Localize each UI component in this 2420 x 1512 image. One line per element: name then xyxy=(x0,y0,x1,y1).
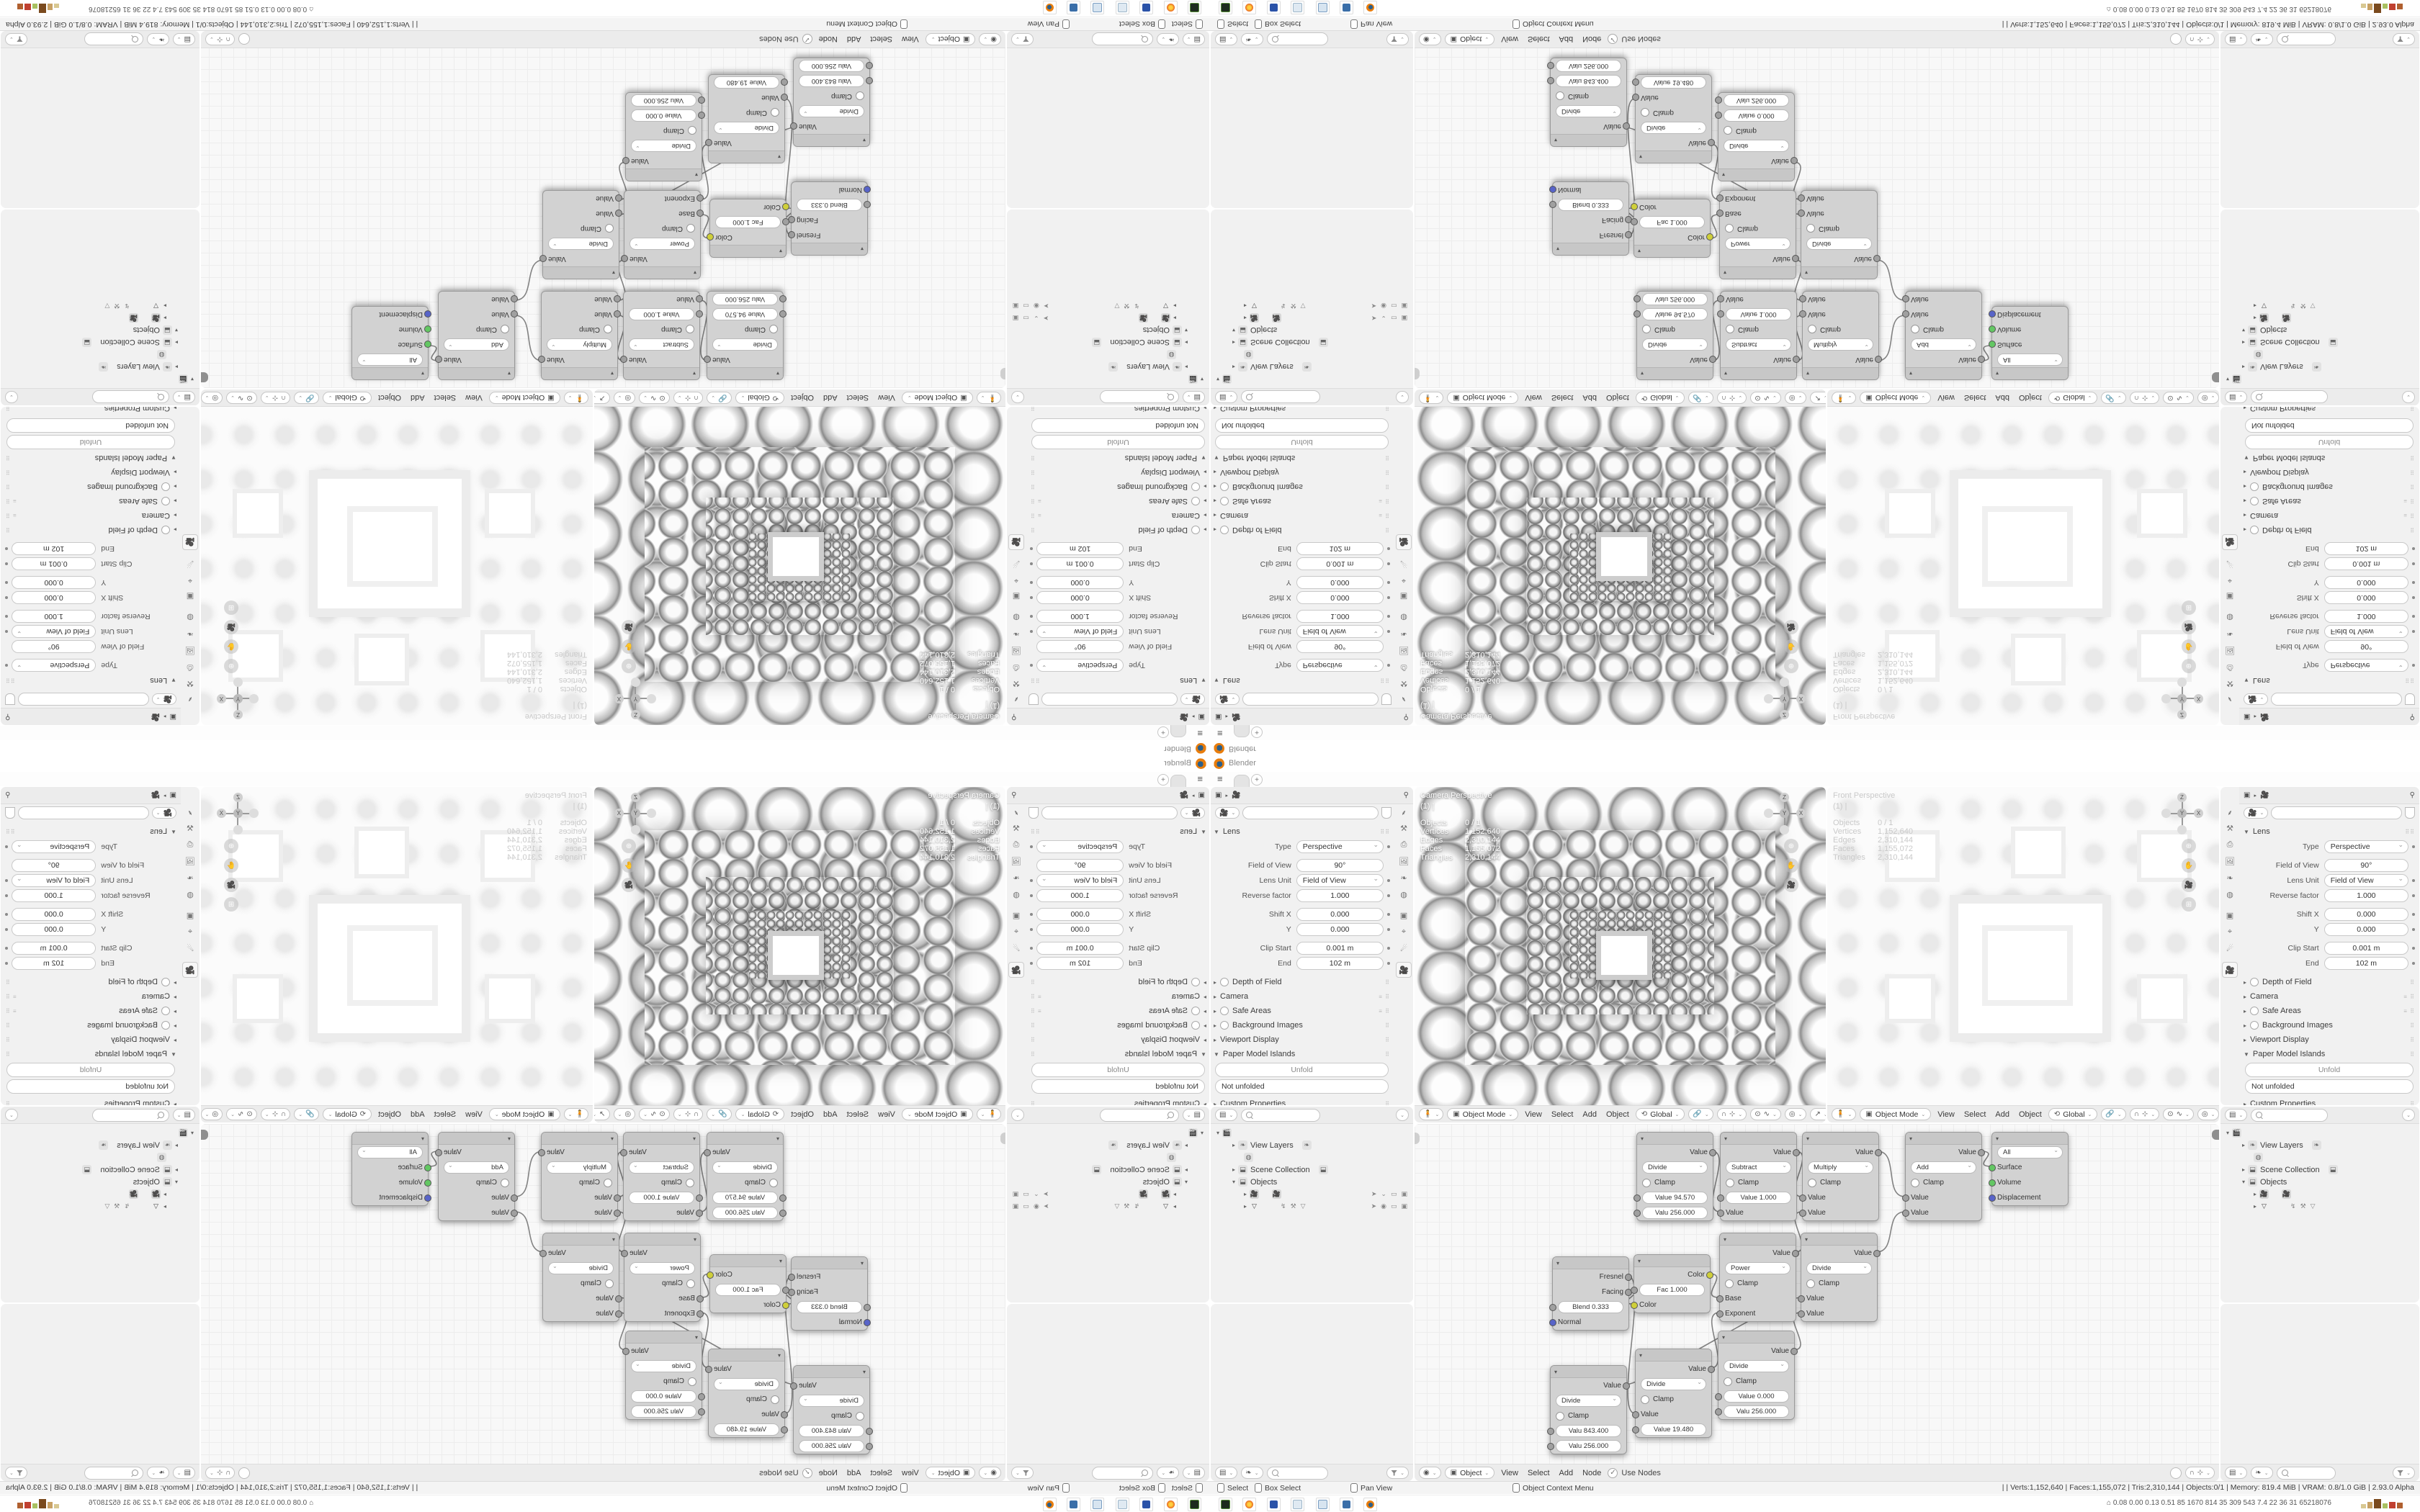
outliner-filter-dropdown[interactable]: ⌄ xyxy=(5,1109,18,1121)
outliner-view-layers-row[interactable]: ▸❧View Layers❧ xyxy=(4,361,194,373)
input-socket[interactable] xyxy=(1547,77,1554,84)
menu-object[interactable]: Object xyxy=(2016,1110,2045,1119)
tab-physics[interactable]: ☄ xyxy=(2223,557,2237,571)
bg-images-checkbox[interactable] xyxy=(2250,482,2259,491)
filter-icon[interactable]: ⸙ xyxy=(1013,806,1019,819)
input-socket[interactable] xyxy=(1547,1443,1554,1450)
input-socket[interactable] xyxy=(1799,1210,1806,1217)
taskbar-image-viewer-icon[interactable] xyxy=(1067,1,1080,14)
filter-dropdown[interactable]: ⌄ xyxy=(1386,33,1409,45)
panel-custom-properties[interactable]: ▸Custom Properties⠿ xyxy=(5,407,176,415)
input-socket[interactable] xyxy=(1989,341,1996,348)
properties-search-input[interactable] xyxy=(2271,806,2402,819)
shader-editor[interactable]: ▾ValueDivideClampValue 94.570Valu 256.00… xyxy=(1415,1124,2219,1481)
unfold-button[interactable]: Unfold xyxy=(1031,1063,1205,1077)
outliner-search-input[interactable] xyxy=(1100,391,1178,404)
output-socket[interactable] xyxy=(1873,1250,1881,1257)
tab-world[interactable]: ◍ xyxy=(1397,611,1411,625)
panel-paper-model[interactable]: ▼Paper Model Islands⠿ xyxy=(1214,1047,1390,1061)
input-socket[interactable] xyxy=(1799,295,1806,302)
camera-view-icon[interactable]: 🎥 xyxy=(1784,878,1798,892)
output-socket[interactable] xyxy=(1706,1272,1713,1279)
outliner-camera-row[interactable]: ▸🎥🎥➤⌄▭▣ xyxy=(1010,312,1204,324)
id-selector[interactable]: 🎥⌄ xyxy=(152,807,176,819)
menu-select[interactable]: Select xyxy=(1525,35,1553,44)
display-mode-dropdown[interactable]: ❧⌄ xyxy=(1157,1467,1178,1479)
safe-areas-checkbox[interactable] xyxy=(161,497,170,505)
type-select[interactable]: Perspective xyxy=(2324,840,2408,853)
panel-depth-of-field[interactable]: ▸Depth of Field⠿ xyxy=(5,975,176,989)
node-header[interactable]: ▾ xyxy=(1637,1133,1713,1145)
bg-images-checkbox[interactable] xyxy=(161,482,170,491)
input-socket[interactable] xyxy=(1902,295,1909,302)
input-socket[interactable] xyxy=(1632,1411,1639,1418)
input-socket[interactable] xyxy=(1716,210,1724,217)
node-header[interactable]: ▾ xyxy=(1801,266,1877,279)
clamp-checkbox[interactable] xyxy=(604,1179,612,1187)
add-workspace-button[interactable]: + xyxy=(1251,774,1263,786)
clamp-checkbox[interactable] xyxy=(769,1179,778,1187)
panel-viewport-display[interactable]: ▸Viewport Display⠿ xyxy=(2244,1032,2415,1047)
menu-add[interactable]: Add xyxy=(1579,1110,1600,1119)
input-socket[interactable] xyxy=(615,1310,622,1318)
snap-toggle[interactable]: ∩⊹⌄ xyxy=(2185,33,2215,45)
outliner-objects-row[interactable]: ▾⬓Objects xyxy=(4,324,194,336)
input-socket[interactable] xyxy=(1717,295,1724,302)
taskbar-firefox-icon[interactable] xyxy=(1242,1,1256,14)
output-socket[interactable] xyxy=(705,1366,712,1373)
panel-background-images[interactable]: ▸Background Images⠿ xyxy=(5,1018,176,1032)
clamp-checkbox[interactable] xyxy=(1641,109,1649,117)
clamp-checkbox[interactable] xyxy=(688,127,696,135)
node-header[interactable]: ▾ xyxy=(626,1331,702,1344)
input-socket[interactable] xyxy=(615,1295,622,1302)
node-header[interactable]: ▾ xyxy=(707,367,783,379)
panel-depth-of-field[interactable]: ▸Depth of Field⠿ xyxy=(1030,523,1206,537)
clamp-checkbox[interactable] xyxy=(1724,127,1732,135)
panel-depth-of-field[interactable]: ▸Depth of Field⠿ xyxy=(2244,975,2415,989)
outliner-mesh-row[interactable]: ▸▽↯⚒▽➤◉▭▣ xyxy=(1216,1200,1410,1212)
input-socket[interactable] xyxy=(1631,1287,1638,1294)
clamp-checkbox[interactable] xyxy=(605,225,614,233)
input-socket[interactable] xyxy=(1799,310,1806,318)
input-socket[interactable] xyxy=(782,1302,789,1309)
output-socket[interactable] xyxy=(435,1149,442,1156)
tab-view-layer[interactable]: ❧ xyxy=(1009,870,1023,885)
node-math-divide-2[interactable]: ▾ValueDivideClampValu 843.400Valu 256.00… xyxy=(1550,1365,1627,1454)
panel-paper-model[interactable]: ▼Paper Model Islands⠿ xyxy=(2244,1047,2415,1061)
clamp-checkbox[interactable] xyxy=(856,92,864,101)
clamp-checkbox[interactable] xyxy=(1911,325,1919,334)
node-header[interactable]: ▾ xyxy=(1992,1133,2068,1145)
tab-object[interactable]: ▣ xyxy=(1009,590,1023,604)
filter-dropdown[interactable]: ⌄ xyxy=(5,33,27,45)
input-socket[interactable] xyxy=(1549,201,1556,208)
pin-icon[interactable]: ⚲ xyxy=(2410,791,2415,799)
lens-unit-select[interactable]: Field of View xyxy=(1296,626,1384,639)
output-socket[interactable] xyxy=(1625,231,1632,238)
clamp-checkbox[interactable] xyxy=(686,325,694,334)
outliner-scene-collection-row[interactable]: ▸⬓Scene Collection⬓ xyxy=(1216,336,1410,348)
input-socket[interactable] xyxy=(1631,203,1638,210)
lens-unit-select[interactable]: Field of View xyxy=(2324,874,2408,887)
menu-view[interactable]: View xyxy=(1522,394,1545,402)
input-socket[interactable] xyxy=(782,203,789,210)
node-invert[interactable]: ▾ColorFac 1.000Color xyxy=(1633,199,1711,258)
taskbar-windows-icon[interactable] xyxy=(1316,1498,1330,1511)
app-menu-button[interactable]: ≡ xyxy=(1214,773,1226,784)
tab-physics[interactable]: ☄ xyxy=(1009,941,1023,955)
proportional-editing[interactable]: ⊙∿⌄ xyxy=(226,392,257,404)
navigation-gizmo[interactable]: Z X Y xyxy=(1764,793,1806,834)
sidebar-toggle-icon[interactable] xyxy=(201,372,208,382)
tab-view-layer[interactable]: ❧ xyxy=(1397,627,1411,642)
node-invert[interactable]: ▾ColorFac 1.000Color xyxy=(709,199,786,258)
output-socket[interactable] xyxy=(1792,1250,1799,1257)
properties-editor-type-icon[interactable]: ▣ xyxy=(1198,791,1205,799)
output-socket[interactable] xyxy=(538,356,545,363)
lens-unit-select[interactable]: Field of View xyxy=(1296,874,1384,887)
menu-view[interactable]: View xyxy=(462,394,485,402)
zoom-tool-icon[interactable]: ⊕ xyxy=(1784,839,1798,853)
panel-paper-model[interactable]: ▼Paper Model Islands⠿ xyxy=(1030,1047,1206,1061)
sidebar-toggle-icon[interactable] xyxy=(201,1130,208,1140)
input-socket[interactable] xyxy=(1631,1302,1638,1309)
snap-target[interactable]: 🔗⌄ xyxy=(2101,392,2125,404)
viewport-editor-type[interactable]: 🧍⌄ xyxy=(1832,1108,1856,1120)
node-math-divide-1[interactable]: ▾ValueDivideClampValue 94.570Valu 256.00… xyxy=(707,291,784,380)
proportional-editing[interactable]: ⊙∿⌄ xyxy=(2163,1108,2194,1120)
node-math-power[interactable]: ▾ValuePowerClampBaseExponent xyxy=(624,190,701,279)
app-menu-button[interactable]: ≡ xyxy=(1194,773,1206,784)
menu-view[interactable]: View xyxy=(1522,1110,1545,1119)
gizmo-toggle[interactable]: ↗⌄ xyxy=(1810,1108,1826,1120)
filter-icon[interactable]: ⸙ xyxy=(2227,693,2233,706)
transform-orientation[interactable]: ⟲Global⌄ xyxy=(2048,1108,2098,1120)
node-header[interactable]: ▾ xyxy=(1906,367,1981,379)
tab-tool[interactable]: ⚒ xyxy=(1397,677,1411,691)
fov-field[interactable]: 90° xyxy=(1036,859,1124,872)
shift-y-field[interactable]: 0.000 xyxy=(12,923,96,936)
input-socket[interactable] xyxy=(511,310,518,318)
clamp-checkbox[interactable] xyxy=(604,325,612,334)
outliner-scene-row[interactable]: ▾🎬 xyxy=(4,373,194,385)
input-socket[interactable] xyxy=(779,295,786,302)
outliner-display-mode[interactable]: ▤⌄ xyxy=(1183,1109,1205,1121)
shader-editor[interactable]: ▾ValueDivideClampValue 94.570Valu 256.00… xyxy=(201,1124,1005,1481)
properties-editor-type-icon[interactable]: ▣ xyxy=(1198,713,1205,721)
properties-editor-type-icon[interactable]: ▣ xyxy=(1215,713,1222,721)
outliner-search-input[interactable] xyxy=(1241,1109,1319,1122)
taskbar-archiver-icon[interactable] xyxy=(1267,1,1281,14)
node-canvas[interactable]: ▾ValueDivideClampValue 94.570Valu 256.00… xyxy=(201,48,1005,388)
outliner-display-mode[interactable]: ▤⌄ xyxy=(173,391,195,403)
pin-icon[interactable]: ⚲ xyxy=(2410,713,2415,721)
menu-add[interactable]: Add xyxy=(844,1469,864,1477)
taskbar-windows-icon[interactable] xyxy=(1316,1,1330,14)
tab-object[interactable]: ▣ xyxy=(1397,590,1411,604)
safe-areas-checkbox[interactable] xyxy=(2250,1007,2259,1015)
output-socket[interactable] xyxy=(622,157,629,164)
clip-start-field[interactable]: 0.001 m xyxy=(2324,558,2408,571)
taskbar-blender-icon[interactable] xyxy=(1363,1,1377,14)
panel-custom-properties[interactable]: ▸Custom Properties⠿ xyxy=(2244,407,2415,415)
node-header[interactable]: ▾ xyxy=(543,1233,619,1246)
outliner-objects-row[interactable]: ▾⬓Objects xyxy=(1216,324,1410,336)
viewport-camera[interactable]: Camera Perspective (1) | Objects0 / 1 Ve… xyxy=(594,787,1005,1122)
outliner-scene-row[interactable]: ▾🎬 xyxy=(1216,1127,1410,1139)
add-workspace-button[interactable]: + xyxy=(1157,774,1169,786)
snap-target[interactable]: 🔗⌄ xyxy=(707,1108,731,1120)
output-socket[interactable] xyxy=(1875,356,1882,363)
clamp-checkbox[interactable] xyxy=(1556,1412,1564,1421)
node-header[interactable]: ▾ xyxy=(1721,1133,1796,1145)
tab-tool[interactable]: ⚒ xyxy=(2223,677,2237,691)
node-math-subtract[interactable]: ▾ValueSubtractClampValue 1.000Value xyxy=(1720,1132,1797,1221)
outliner-camera-row[interactable]: ▸🎥🎥➤⌄▭▣ xyxy=(1010,1188,1204,1200)
proportional-editing[interactable]: ⊙∿⌄ xyxy=(226,1108,257,1120)
id-selector[interactable]: 🎥⌄ xyxy=(1215,807,1240,819)
viewport-editor-type[interactable]: 🧍⌄ xyxy=(564,392,588,404)
panel-viewport-display[interactable]: ▸Viewport Display⠿ xyxy=(1214,465,1390,480)
navigation-gizmo[interactable]: Z X Y xyxy=(2161,678,2203,719)
node-header[interactable]: ▾ xyxy=(1992,367,2068,379)
panel-background-images[interactable]: ▸Background Images⠿ xyxy=(1214,1018,1390,1032)
clamp-checkbox[interactable] xyxy=(1724,1377,1732,1386)
input-socket[interactable] xyxy=(1902,1194,1909,1202)
outliner-search-input[interactable] xyxy=(2251,391,2328,404)
node-math-divide-4[interactable]: ▾ValueDivideClampValue 0.000Valu 256.000 xyxy=(625,1331,702,1420)
mode-select[interactable]: ▣Object Mode⌄ xyxy=(1860,392,1931,404)
output-socket[interactable] xyxy=(1978,356,1985,363)
outliner-scene-row[interactable]: ▾🎬 xyxy=(4,1127,194,1139)
tab-world[interactable]: ◍ xyxy=(183,887,197,901)
tab-object[interactable]: ▣ xyxy=(2223,590,2237,604)
dof-checkbox[interactable] xyxy=(2250,526,2259,534)
input-socket[interactable] xyxy=(1549,1319,1556,1326)
viewport-front[interactable]: Front Perspective (1) | Objects0 / 1 Ver… xyxy=(201,787,593,1122)
editor-type-dropdown[interactable]: ▤⌄ xyxy=(2225,33,2247,45)
shift-y-field[interactable]: 0.000 xyxy=(1296,577,1384,590)
grid-icon[interactable]: ⊞ xyxy=(224,600,238,615)
shader-editor-type[interactable]: ◉⌄ xyxy=(979,1467,1001,1479)
outliner-display-mode[interactable]: ▤⌄ xyxy=(1183,391,1205,403)
snap-toggle[interactable]: ∩⊹⌄ xyxy=(673,392,703,404)
tab-constraints[interactable]: ⌖ xyxy=(1009,573,1023,588)
tab-render[interactable]: ⎙ xyxy=(1009,837,1023,852)
input-socket[interactable] xyxy=(1632,94,1639,101)
taskbar-notes-icon[interactable] xyxy=(1116,1498,1129,1511)
proportional-editing[interactable]: ⊙∿⌄ xyxy=(2163,392,2194,404)
unfold-button[interactable]: Unfold xyxy=(1031,435,1205,449)
input-socket[interactable] xyxy=(1715,96,1722,104)
tab-world[interactable]: ◍ xyxy=(1397,887,1411,901)
dof-checkbox[interactable] xyxy=(1191,978,1200,986)
node-header[interactable]: ▾ xyxy=(792,243,867,255)
output-socket[interactable] xyxy=(1708,139,1715,146)
tab-object[interactable]: ▣ xyxy=(183,590,197,604)
node-header[interactable]: ▾ xyxy=(439,1133,514,1145)
pan-tool-icon[interactable]: ✋ xyxy=(224,858,238,873)
node-material-output[interactable]: ▾AllSurfaceVolumeDisplacement xyxy=(1991,306,2069,380)
output-socket[interactable] xyxy=(621,1250,628,1257)
input-socket[interactable] xyxy=(864,186,871,193)
input-socket[interactable] xyxy=(511,1210,518,1217)
id-selector[interactable]: 🎥⌄ xyxy=(152,693,176,705)
clamp-checkbox[interactable] xyxy=(1556,92,1564,101)
input-socket[interactable] xyxy=(1989,1164,1996,1171)
outliner-view-layers-row[interactable]: ▸❧View Layers❧ xyxy=(1216,361,1410,373)
input-socket[interactable] xyxy=(696,1210,703,1217)
node-header[interactable]: ▾ xyxy=(624,1233,700,1246)
outliner-view-layers-row[interactable]: ▸❧View Layers❧ xyxy=(2226,361,2416,373)
node-math-power[interactable]: ▾ValuePowerClampBaseExponent xyxy=(1719,190,1796,279)
node-header[interactable]: ▾ xyxy=(439,367,514,379)
camera-view-icon[interactable]: 🎥 xyxy=(622,620,636,634)
viewport-front[interactable]: Front Perspective (1) | Objects0 / 1 Ver… xyxy=(1827,787,2219,1122)
display-mode-dropdown[interactable]: ❧⌄ xyxy=(147,1467,169,1479)
panel-depth-of-field[interactable]: ▸Depth of Field⠿ xyxy=(1214,523,1390,537)
properties-search-input[interactable] xyxy=(2271,693,2402,706)
menu-add[interactable]: Add xyxy=(1556,35,1577,44)
clip-end-field[interactable]: 102 m xyxy=(1036,957,1124,970)
panel-paper-model[interactable]: ▼Paper Model Islands⠿ xyxy=(5,451,176,465)
filter-icon[interactable]: ⸙ xyxy=(187,806,193,819)
input-socket[interactable] xyxy=(424,1194,431,1202)
editor-type-dropdown[interactable]: ▤⌄ xyxy=(173,1467,195,1479)
menu-object[interactable]: Object xyxy=(375,394,404,402)
menu-select[interactable]: Select xyxy=(1549,1110,1577,1119)
clamp-checkbox[interactable] xyxy=(1641,1395,1649,1404)
tab-view-layer[interactable]: ❧ xyxy=(2223,627,2237,642)
outliner-search-input[interactable] xyxy=(2251,1109,2328,1122)
node-math-divide-1[interactable]: ▾ValueDivideClampValue 94.570Valu 256.00… xyxy=(1636,1132,1713,1221)
clamp-checkbox[interactable] xyxy=(771,109,779,117)
dof-checkbox[interactable] xyxy=(161,978,170,986)
outliner-world-row[interactable]: ◍ xyxy=(1216,348,1410,361)
menu-add[interactable]: Add xyxy=(408,394,428,402)
mode-select[interactable]: ▣Object Mode⌄ xyxy=(489,392,560,404)
editor-type-dropdown[interactable]: ▤⌄ xyxy=(1183,33,1205,45)
filter-dropdown[interactable]: ⌄ xyxy=(1011,33,1034,45)
not-unfolded-field[interactable]: Not unfolded xyxy=(2245,1079,2414,1094)
node-layer-weight[interactable]: ▾FresnelFacingBlend 0.333Normal xyxy=(791,1256,868,1331)
panel-safe-areas[interactable]: ▸Safe Areas≡ ⠿ xyxy=(1030,1004,1206,1018)
type-select[interactable]: Perspective xyxy=(12,660,96,672)
tab-object[interactable]: ▣ xyxy=(1397,908,1411,922)
transform-orientation[interactable]: ⟲Global⌄ xyxy=(1636,1108,1685,1120)
shift-x-field[interactable]: 0.000 xyxy=(1296,908,1384,921)
tab-output[interactable]: 🖼 xyxy=(1009,644,1023,658)
clip-end-field[interactable]: 102 m xyxy=(1296,957,1384,970)
outliner-scene-collection-row[interactable]: ▸⬓Scene Collection⬓ xyxy=(2226,1164,2416,1176)
shift-y-field[interactable]: 0.000 xyxy=(2324,577,2408,590)
input-socket[interactable] xyxy=(1798,1295,1805,1302)
viewport-camera[interactable]: Camera Perspective (1) | Objects0 / 1 Ve… xyxy=(1415,787,1826,1122)
node-math-subtract[interactable]: ▾ValueSubtractClampValue 1.000Value xyxy=(1720,291,1797,380)
panel-paper-model[interactable]: ▼Paper Model Islands⠿ xyxy=(1030,451,1206,465)
grid-icon[interactable]: ⊞ xyxy=(224,897,238,912)
input-socket[interactable] xyxy=(696,1310,704,1318)
clamp-checkbox[interactable] xyxy=(769,325,778,334)
panel-paper-model[interactable]: ▼Paper Model Islands⠿ xyxy=(1214,451,1390,465)
reverse-field[interactable]: 1.000 xyxy=(2324,611,2408,624)
panel-background-images[interactable]: ▸Background Images⠿ xyxy=(2244,480,2415,494)
outliner-display-mode[interactable]: ▤⌄ xyxy=(173,1109,195,1121)
menu-select[interactable]: Select xyxy=(844,1110,872,1119)
display-mode-dropdown[interactable]: ❧⌄ xyxy=(2251,33,2272,45)
type-select[interactable]: Perspective xyxy=(1036,660,1124,672)
grid-icon[interactable]: ⊞ xyxy=(2182,897,2196,912)
output-socket[interactable] xyxy=(1623,122,1630,130)
input-socket[interactable] xyxy=(1716,1295,1724,1302)
tab-output[interactable]: 🖼 xyxy=(2223,644,2237,658)
clip-start-field[interactable]: 0.001 m xyxy=(1296,942,1384,955)
panel-safe-areas[interactable]: ▸Safe Areas≡ ⠿ xyxy=(5,1004,176,1018)
input-socket[interactable] xyxy=(1798,210,1805,217)
shader-type-select[interactable]: ▣Object⌄ xyxy=(1445,1467,1495,1479)
tab-render[interactable]: ⎙ xyxy=(2223,660,2237,675)
menu-view[interactable]: View xyxy=(1498,35,1521,44)
node-math-add[interactable]: ▾ValueAddClampValueValue xyxy=(438,1132,515,1221)
use-nodes-checkbox[interactable]: ✓ xyxy=(1608,35,1618,45)
outliner-scene-collection-row[interactable]: ▸⬓Scene Collection⬓ xyxy=(4,336,194,348)
clamp-checkbox[interactable] xyxy=(1642,325,1651,334)
input-socket[interactable] xyxy=(1632,78,1639,86)
not-unfolded-field[interactable]: Not unfolded xyxy=(6,418,175,433)
taskbar-terminal-icon[interactable] xyxy=(1219,1,1232,14)
zoom-tool-icon[interactable]: ⊕ xyxy=(622,839,636,853)
safe-areas-checkbox[interactable] xyxy=(161,1007,170,1015)
menu-view[interactable]: View xyxy=(899,35,922,44)
lens-panel-header[interactable]: ▼Lens⠿⠿ xyxy=(1030,824,1206,839)
tab-constraints[interactable]: ⌖ xyxy=(1397,573,1411,588)
input-socket[interactable] xyxy=(1633,295,1641,302)
outliner-camera-row[interactable]: ▸🎥🎥 xyxy=(4,312,194,324)
lens-panel-header[interactable]: ▼Lens⠿⠿ xyxy=(2244,673,2415,688)
outliner-camera-row[interactable]: ▸🎥🎥➤⌄▭▣ xyxy=(1216,312,1410,324)
output-socket[interactable] xyxy=(704,356,711,363)
input-socket[interactable] xyxy=(1547,62,1554,69)
secondary-search-input[interactable] xyxy=(1092,1467,1153,1480)
output-socket[interactable] xyxy=(704,1149,711,1156)
node-math-subtract[interactable]: ▾ValueSubtractClampValue 1.000Value xyxy=(623,1132,700,1221)
outliner-scene-row[interactable]: ▾🎬 xyxy=(2226,1127,2416,1139)
tab-object[interactable]: ▣ xyxy=(2223,908,2237,922)
panel-camera[interactable]: ▸Camera≡ ⠿ xyxy=(1214,989,1390,1004)
editor-type-dropdown[interactable]: ▤⌄ xyxy=(2225,1467,2247,1479)
output-socket[interactable] xyxy=(788,1274,795,1281)
tab-constraints[interactable]: ⌖ xyxy=(2223,924,2237,939)
taskbar-windows-icon[interactable] xyxy=(1090,1498,1104,1511)
unfold-button[interactable]: Unfold xyxy=(2245,1063,2414,1077)
input-socket[interactable] xyxy=(779,310,786,318)
type-select[interactable]: Perspective xyxy=(1036,840,1124,853)
display-mode-dropdown[interactable]: ❧⌄ xyxy=(147,33,169,45)
fov-field[interactable]: 90° xyxy=(1296,859,1384,872)
clamp-checkbox[interactable] xyxy=(501,325,509,334)
taskbar-notes-icon[interactable] xyxy=(1116,1,1129,14)
menu-view[interactable]: View xyxy=(1498,1469,1521,1477)
output-socket[interactable] xyxy=(435,356,442,363)
tab-render[interactable]: ⎙ xyxy=(1009,660,1023,675)
filter-icon[interactable]: ⸙ xyxy=(2227,806,2233,819)
menu-select[interactable]: Select xyxy=(1961,394,1989,402)
input-socket[interactable] xyxy=(782,218,789,225)
panel-viewport-display[interactable]: ▸Viewport Display⠿ xyxy=(1030,1032,1206,1047)
pan-tool-icon[interactable]: ✋ xyxy=(622,858,636,873)
outliner-display-mode[interactable]: ▤⌄ xyxy=(1215,1109,1237,1121)
